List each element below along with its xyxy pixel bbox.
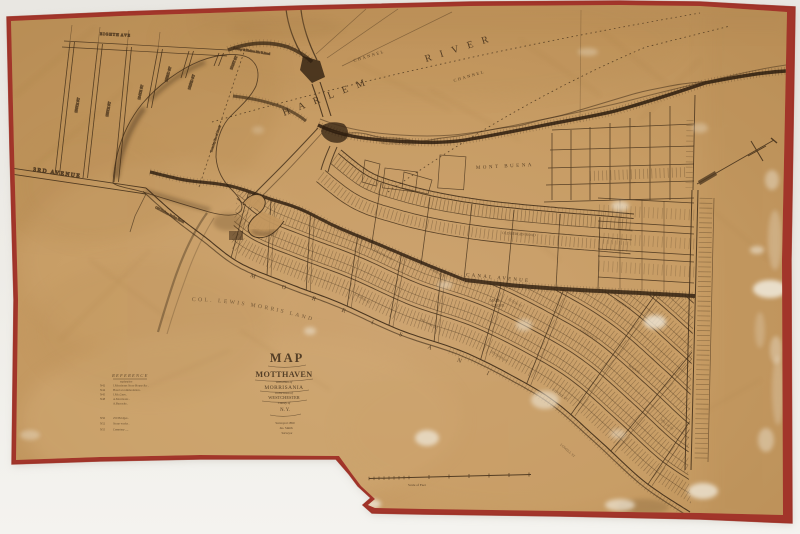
svg-text:N45: N45 — [100, 393, 106, 397]
svg-text:A.Barracks .: A.Barracks . — [113, 402, 128, 406]
svg-text:N48: N48 — [100, 397, 106, 401]
svg-text:GROVE: GROVE — [492, 304, 505, 308]
svg-text:MAP: MAP — [270, 351, 304, 365]
svg-text:N52: N52 — [100, 422, 106, 426]
svg-text:N55: N55 — [100, 428, 106, 432]
svg-text:with Plan of: with Plan of — [276, 380, 294, 384]
svg-text:MARL: MARL — [490, 299, 500, 303]
svg-text:Surveyor: Surveyor — [282, 431, 293, 435]
svg-text:Surveyed 1850: Surveyed 1850 — [275, 421, 295, 425]
svg-text:Hotel accommodation .: Hotel accommodation . — [113, 388, 141, 392]
svg-text:REFERENCE: REFERENCE — [111, 373, 149, 378]
svg-text:N44: N44 — [100, 388, 106, 392]
svg-text:250 Bridges .: 250 Bridges . — [113, 416, 129, 420]
svg-text:J.Mc.Gees .: J.Mc.Gees . — [113, 393, 127, 397]
svg-text:Stone works .: Stone works . — [113, 422, 130, 426]
svg-text:Jas. Smith: Jas. Smith — [279, 426, 293, 430]
svg-text:N50: N50 — [100, 416, 106, 420]
svg-text:WESTCHESTER: WESTCHESTER — [268, 395, 300, 400]
svg-text:N42: N42 — [100, 384, 106, 388]
svg-text:J.Morrisons Store House &c .: J.Morrisons Store House &c . — [113, 384, 149, 388]
svg-text:A.Morrisons .: A.Morrisons . — [113, 397, 130, 401]
svg-text:N. Y.: N. Y. — [280, 408, 290, 413]
svg-text:County of: County of — [278, 401, 292, 405]
svg-text:Cemetery ....: Cemetery .... — [113, 428, 129, 432]
svg-text:Scale of Feet: Scale of Feet — [408, 483, 426, 487]
svg-text:MOTTHAVEN: MOTTHAVEN — [255, 370, 312, 379]
